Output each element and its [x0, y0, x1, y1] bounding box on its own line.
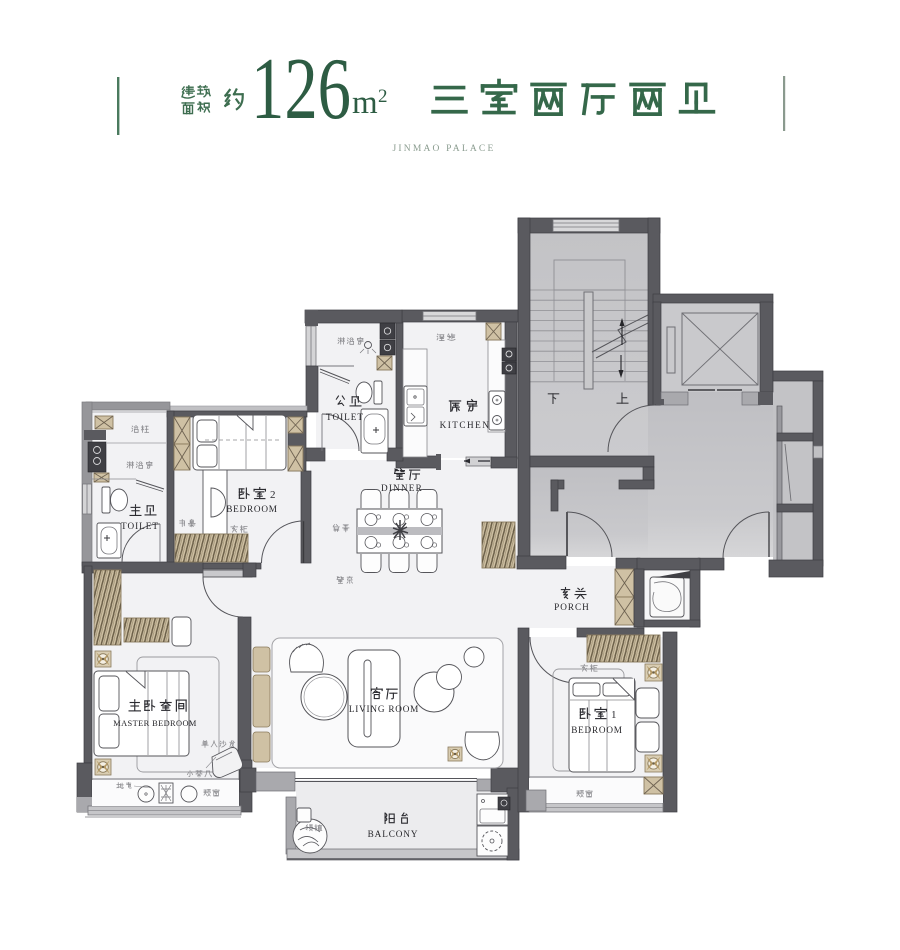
svg-text:TOILET: TOILET	[121, 521, 159, 531]
svg-text:MASTER BEDROOM: MASTER BEDROOM	[113, 719, 197, 728]
svg-text:PORCH: PORCH	[554, 602, 590, 612]
svg-text:KITCHEN: KITCHEN	[440, 420, 491, 430]
svg-text:m: m	[352, 85, 378, 121]
svg-text:JINMAO PALACE: JINMAO PALACE	[393, 144, 496, 154]
svg-text:DINNER: DINNER	[381, 483, 423, 493]
svg-text:BEDROOM: BEDROOM	[571, 725, 623, 735]
svg-text:2: 2	[378, 86, 388, 107]
svg-text:TOILET: TOILET	[326, 412, 364, 422]
svg-text:2: 2	[270, 489, 276, 501]
svg-text:BEDROOM: BEDROOM	[226, 504, 278, 514]
svg-text:126: 126	[251, 41, 351, 138]
svg-text:LIVING ROOM: LIVING ROOM	[349, 704, 419, 714]
svg-text:1: 1	[611, 709, 617, 721]
svg-text:BALCONY: BALCONY	[368, 829, 419, 839]
